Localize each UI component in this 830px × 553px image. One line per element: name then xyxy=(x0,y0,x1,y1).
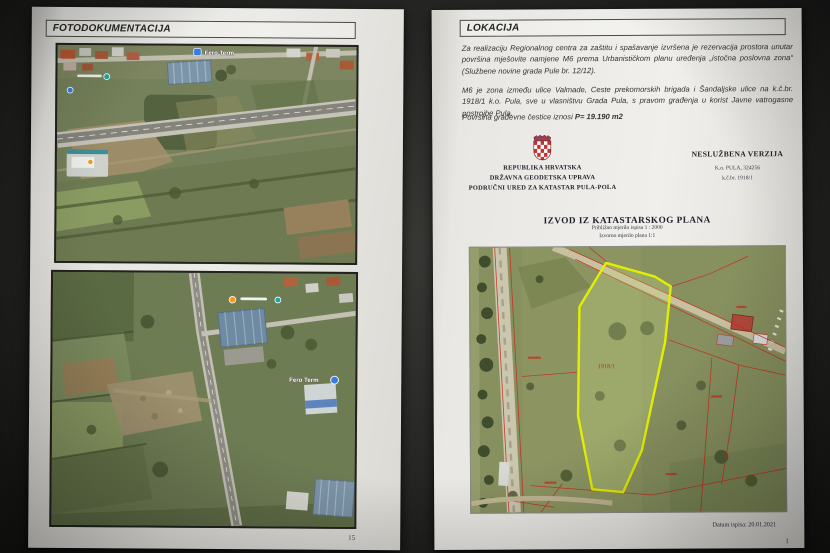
unreadable-map-label xyxy=(240,297,267,300)
fero-term-pin-icon xyxy=(194,48,201,55)
warehouse-building xyxy=(167,60,212,84)
version-block: NESLUŽBENA VERZIJA K.o. PULA, 324256 k.č… xyxy=(682,149,792,184)
right-page-header-label: LOKACIJA xyxy=(467,22,520,33)
authority-line-3: PODRUČNI URED ZA KATASTAR PULA-POLA xyxy=(442,183,642,194)
left-page-header-label: FOTODOKUMENTACIJA xyxy=(53,22,171,34)
cadastral-parcel-number: k.č.br. 1918/1 xyxy=(682,174,792,184)
fero-term-label: Fero Term xyxy=(289,377,319,384)
fero-term-pin-icon xyxy=(331,376,339,384)
teal-place-marker-icon xyxy=(104,74,110,80)
right-page-number: 1 xyxy=(785,537,789,545)
map-scale-2: Izvorno mjerilo plana 1:1 xyxy=(469,232,786,242)
right-page-header: LOKACIJA xyxy=(460,18,786,37)
map-title-block: IZVOD IZ KATASTARSKOG PLANA Približno mj… xyxy=(469,214,786,242)
parcel-number-label: 1918/1 xyxy=(598,363,616,370)
gas-station xyxy=(67,149,109,177)
warehouse-building-2 xyxy=(313,479,355,517)
cadastral-map-graphic: 1918/1 xyxy=(470,246,786,513)
right-document-page: LOKACIJA Za realizaciju Regionalnog cent… xyxy=(432,8,805,550)
fero-term-label: Fero Term xyxy=(205,50,235,57)
orange-place-marker-icon xyxy=(88,159,93,164)
left-document-page: FOTODOKUMENTACIJA xyxy=(28,7,404,551)
photographed-documents-scene: FOTODOKUMENTACIJA xyxy=(0,0,830,553)
unreadable-map-label xyxy=(77,74,102,77)
aerial-photo-bottom: Fero Term xyxy=(49,270,358,529)
location-paragraph-1: Za realizaciju Regionalnog centra za zaš… xyxy=(462,41,793,77)
left-page-number: 15 xyxy=(348,534,355,542)
aerial-photo-bottom-graphic: Fero Term xyxy=(51,272,356,527)
version-label: NESLUŽBENA VERZIJA xyxy=(682,149,792,159)
cadastral-municipality: K.o. PULA, 324256 xyxy=(682,164,792,174)
aerial-photo-top-graphic: Fero Term xyxy=(56,45,357,263)
print-date: Datum ispisa: 20.01.2021 xyxy=(684,521,804,529)
location-paragraph-3: Površina građevne čestice iznosi P= 19.1… xyxy=(462,110,793,123)
area-value: P= 19.190 m2 xyxy=(575,112,623,121)
orange-place-marker-icon xyxy=(229,296,236,303)
blue-roof-building xyxy=(218,308,269,365)
left-page-header: FOTODOKUMENTACIJA xyxy=(46,20,356,39)
fero-term-store xyxy=(304,383,337,414)
blue-place-marker-icon xyxy=(67,87,73,93)
croatian-coat-of-arms-icon xyxy=(531,134,553,161)
cadastral-map: 1918/1 xyxy=(469,245,787,514)
authority-block: REPUBLIKA HRVATSKA DRŽAVNA GEODETSKA UPR… xyxy=(442,134,642,194)
teal-place-marker-icon xyxy=(275,297,281,303)
aerial-photo-top: Fero Term xyxy=(54,43,359,265)
area-label: Površina građevne čestice iznosi xyxy=(462,112,573,122)
